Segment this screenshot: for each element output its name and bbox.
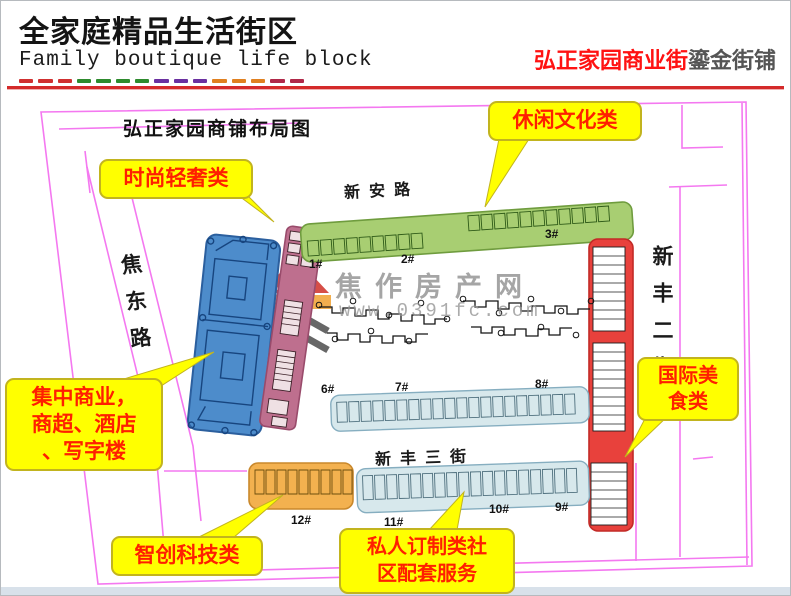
- building-label-8: 8#: [535, 377, 548, 391]
- callout-central-commerce-line3: 、写字楼: [15, 438, 153, 465]
- callout-central-commerce-line2: 商超、酒店: [15, 411, 153, 438]
- building-label-1: 1#: [309, 257, 322, 271]
- callout-private-custom-line2: 区配套服务: [349, 561, 505, 588]
- building-label-2: 2#: [401, 252, 414, 266]
- building-label-10: 10#: [489, 502, 509, 516]
- plan-title: 弘正家园商铺布局图: [123, 114, 312, 141]
- building-label-11: 11#: [384, 515, 403, 529]
- building-label-3: 3#: [545, 227, 558, 241]
- zone-food-strip: [589, 239, 633, 531]
- callout-smart-tech: 智创科技类: [111, 536, 263, 576]
- callout-leisure-culture-category: 休闲文化类: [488, 101, 642, 141]
- slide: 全家庭精品生活街区 Family boutique life block 弘正家…: [0, 0, 791, 596]
- callout-private-custom-line1: 私人订制类社: [349, 534, 505, 561]
- callout-central-commerce-line1: 集中商业，: [15, 384, 153, 411]
- building-label-9: 9#: [555, 500, 568, 514]
- callout-central-commerce: 集中商业， 商超、酒店 、写字楼: [5, 378, 163, 471]
- callout-private-custom-services: 私人订制类社 区配套服务: [339, 528, 515, 594]
- building-label-12: 12#: [291, 513, 311, 527]
- watermark-site-name: 焦作房产网: [335, 265, 535, 304]
- watermark-url: www.0391fc.com: [339, 300, 541, 322]
- zone-tech-strip: [249, 463, 353, 509]
- zone-leisure-strip: [300, 201, 634, 262]
- building-label-7: 7#: [395, 380, 408, 394]
- building-label-6: 6#: [321, 382, 334, 396]
- zone-midblue-strip: [330, 386, 589, 431]
- callout-international-food: 国际美 食类: [637, 357, 739, 421]
- street-label-xinan-road: 新安路: [343, 175, 419, 203]
- callout-international-food-line2: 食类: [647, 389, 729, 415]
- street-label-xinfeng-3rd-street: 新丰三街: [375, 442, 476, 469]
- callout-international-food-line1: 国际美: [647, 363, 729, 389]
- callout-fashion-category: 时尚轻奢类: [99, 159, 253, 199]
